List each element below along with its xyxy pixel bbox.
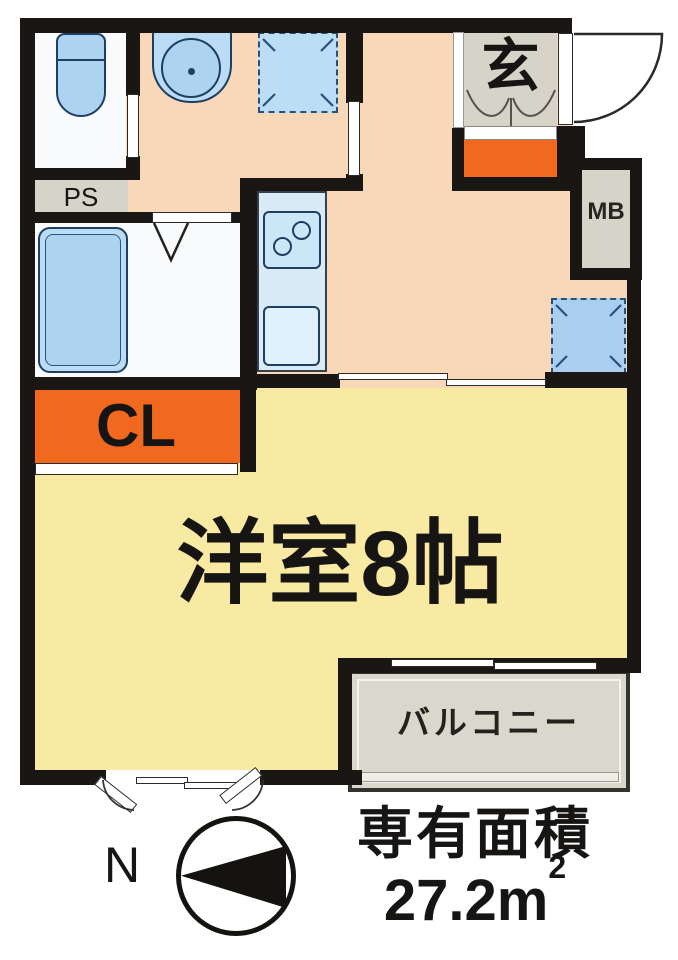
- bay-window-casement-left: [94, 776, 137, 813]
- washroom-sliding-door: [348, 101, 360, 176]
- closet-label: CL: [32, 396, 240, 456]
- area-unit-sup: 2: [548, 849, 566, 885]
- wall: [240, 178, 257, 390]
- wall: [240, 377, 256, 472]
- entrance-step: [464, 126, 557, 140]
- washing-machine-space: [258, 32, 338, 113]
- washbasin-drain: [188, 68, 195, 75]
- pipe-space-label: PS: [34, 184, 128, 210]
- kitchen-sliding-door: [446, 379, 546, 386]
- floor-plan: MB 玄 PS CL 洋室8帖 バルコニー N 専有面積 27.2m2: [0, 0, 678, 960]
- bathroom-door: [152, 212, 232, 223]
- balcony-label: バルコニー: [368, 706, 610, 739]
- wall: [20, 18, 572, 33]
- area-number: 27.2m: [384, 868, 548, 933]
- meter-box-label: MB: [582, 200, 630, 224]
- balcony-rail: [359, 772, 619, 782]
- stove: [263, 211, 321, 269]
- bay-window-sash: [136, 777, 188, 784]
- compass-north-label: N: [104, 840, 140, 890]
- wall: [20, 212, 152, 223]
- wall: [545, 372, 627, 388]
- entrance-door: [558, 33, 573, 125]
- stove-burner: [273, 237, 292, 256]
- wall: [346, 18, 363, 103]
- balcony-sliding-window: [391, 659, 494, 667]
- entrance-label: 玄: [464, 38, 557, 96]
- bathtub-inner: [45, 234, 121, 366]
- wall: [20, 377, 257, 390]
- kitchen-counter: [257, 191, 327, 372]
- shoe-cabinet: [464, 140, 566, 177]
- wall: [126, 156, 140, 180]
- stove-burner: [292, 221, 311, 240]
- wall: [627, 263, 641, 673]
- toilet-tank-line: [58, 59, 104, 61]
- meter-box: MB: [570, 158, 642, 280]
- wall: [250, 374, 340, 388]
- wall: [346, 174, 363, 191]
- wall: [20, 770, 106, 785]
- toilet-door: [127, 94, 139, 158]
- main-room-label: 洋室8帖: [110, 518, 570, 610]
- area-value: 27.2m2: [330, 872, 620, 930]
- toilet: [56, 33, 106, 117]
- wall: [126, 18, 140, 96]
- closet-sliding-door: [35, 463, 238, 475]
- refrigerator-space: [551, 298, 626, 374]
- entrance-partition: [453, 32, 464, 128]
- wall: [20, 168, 128, 180]
- kitchen-sink: [263, 306, 320, 366]
- area-title: 専有面積: [330, 806, 620, 862]
- balcony-sliding-window: [494, 662, 597, 670]
- wall: [240, 178, 363, 191]
- wall: [338, 672, 352, 785]
- kitchen-sliding-door: [338, 373, 448, 380]
- bathtub: [38, 227, 128, 373]
